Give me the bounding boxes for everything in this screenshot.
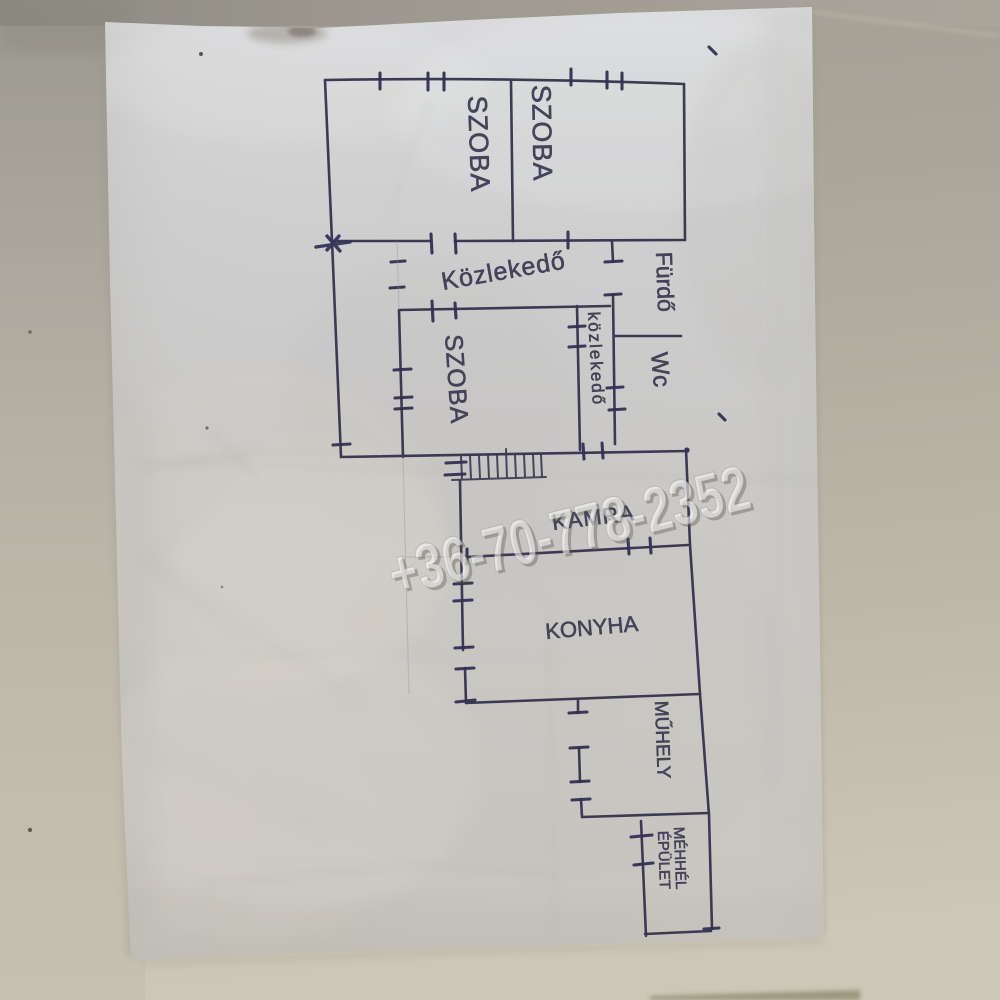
svg-text:Wc: Wc xyxy=(645,351,675,388)
svg-text:Fürdő: Fürdő xyxy=(651,251,679,312)
svg-text:SZOBA: SZOBA xyxy=(462,95,495,193)
svg-text:SZOBA: SZOBA xyxy=(526,85,558,182)
svg-text:ÉPÜLET: ÉPÜLET xyxy=(654,831,674,890)
svg-text:MŰHELY: MŰHELY xyxy=(650,700,675,779)
